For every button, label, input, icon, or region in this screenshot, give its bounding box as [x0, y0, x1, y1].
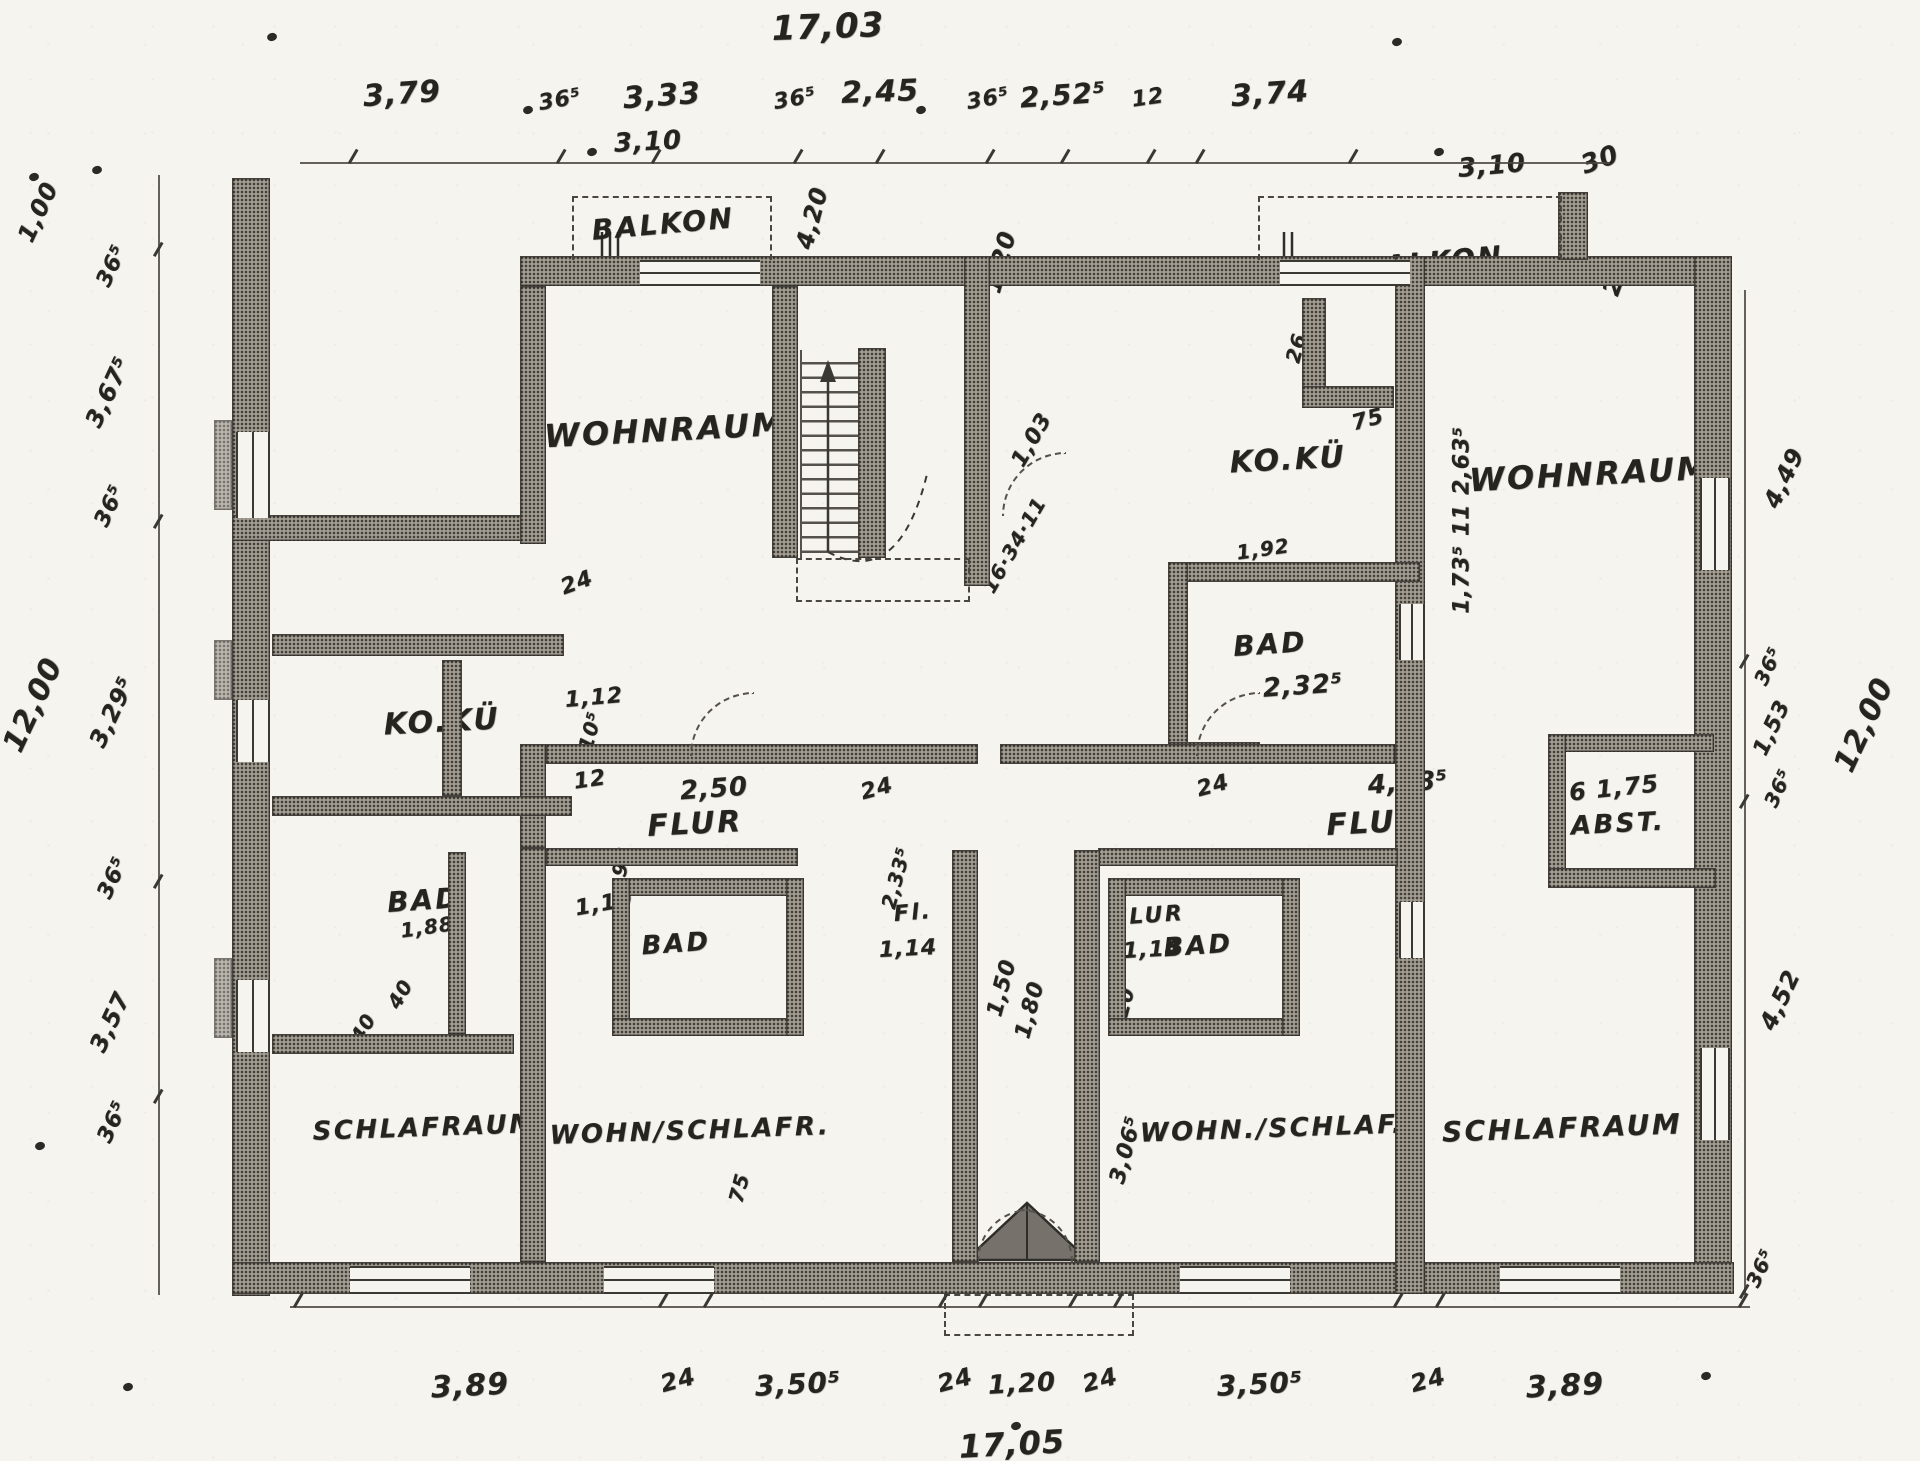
- entry-canopy-icon: [966, 1203, 1088, 1260]
- wall: [1548, 868, 1716, 888]
- photocopy-dot: [266, 32, 278, 42]
- wall: [772, 286, 798, 558]
- dim-entry-1-80: 1,80: [1010, 979, 1049, 1042]
- dim-bottom-24-b: 24: [934, 1362, 975, 1398]
- dim-top-2-52-5: 2,52⁵: [1019, 76, 1107, 115]
- wall: [964, 256, 990, 586]
- dim-entry-1-50: 1,50: [982, 957, 1021, 1020]
- dimension-line: [290, 1306, 1750, 1308]
- room-label-wohn-schlaf: WOHN./SCHLAF.: [1139, 1109, 1404, 1148]
- wall: [214, 958, 232, 1038]
- wall: [1548, 734, 1566, 886]
- dim-bottom-3-50-5-right: 3,50⁵: [1216, 1365, 1304, 1402]
- wall: [214, 640, 232, 700]
- wall: [1168, 562, 1420, 582]
- dim-right-36-5-b: 36⁵: [1759, 765, 1797, 811]
- dim-right-1-53: 1,53: [1748, 696, 1795, 759]
- wall: [1074, 850, 1100, 1262]
- stair-landing-outline: [796, 558, 970, 602]
- window: [640, 260, 760, 286]
- window: [1399, 604, 1425, 660]
- dim-koku-left-12: 12: [572, 765, 608, 794]
- balcony-outline: [572, 196, 772, 260]
- wall: [612, 878, 630, 1036]
- dim-flur-right-1-14: 1,14: [1122, 936, 1182, 964]
- room-label-wohnraum-left: WOHNRAUM: [543, 405, 787, 456]
- window: [1180, 1266, 1290, 1294]
- dim-bottom-24-d: 24: [1407, 1362, 1448, 1398]
- dim-left-36-5-a: 36⁵: [92, 241, 133, 291]
- photocopy-dot: [122, 1382, 134, 1392]
- dim-wohnraum-right-chain: 1,73⁵ 11 2,63⁵: [1450, 426, 1475, 614]
- dim-left-3-29-5: 3,29⁵: [84, 672, 141, 752]
- dim-flur-right-24: 24: [1194, 770, 1232, 803]
- dim-bottom-3-89-left: 3,89: [430, 1366, 510, 1405]
- photocopy-dot: [1433, 147, 1445, 157]
- dim-bad-right-2-32-5: 2,32⁵: [1262, 668, 1344, 704]
- dim-top-3-74: 3,74: [1230, 74, 1310, 114]
- wall: [442, 660, 462, 796]
- dim-overall-depth-right: 12,00: [1827, 672, 1901, 777]
- room-label-bad-lower-left: BAD: [641, 927, 712, 962]
- photocopy-dot: [1700, 1371, 1712, 1381]
- dimension-line: [300, 162, 1610, 164]
- dim-top-36-5-a: 36⁵: [537, 84, 584, 116]
- room-label-wohnraum-right: WOHNRAUM: [1468, 449, 1712, 500]
- wall: [1282, 878, 1300, 1036]
- wall: [1108, 1018, 1300, 1036]
- wall: [272, 796, 572, 816]
- dim-entry-75: 75: [724, 1170, 755, 1205]
- wall: [1108, 878, 1300, 896]
- wall: [612, 878, 804, 896]
- dim-fl-left-1-14: 1,14: [878, 935, 938, 963]
- dim-bottom-24-c: 24: [1079, 1362, 1120, 1398]
- room-label-abst: ABST.: [1570, 807, 1666, 842]
- photocopy-dot: [915, 105, 927, 115]
- floor-plan-canvas: 17,03 17,05 12,00 12,00 BALKONBALKONWOHN…: [0, 0, 1920, 1461]
- window: [236, 432, 270, 518]
- window: [1700, 478, 1730, 570]
- dim-bottom-24-a: 24: [657, 1362, 698, 1398]
- entry-stoop-outline: [944, 1294, 1134, 1336]
- dim-left-3-67-5: 3,67⁵: [80, 352, 137, 432]
- dim-top-36-5-b: 36⁵: [772, 83, 819, 115]
- dim-left-3-57: 3,57: [84, 987, 136, 1056]
- room-label-ko-ku-right: KO.KÜ: [1229, 439, 1347, 480]
- dim-flur-left-24: 24: [858, 773, 896, 806]
- wall: [1548, 734, 1714, 752]
- dim-left-36-5-d: 36⁵: [93, 1097, 134, 1147]
- dim-overall-depth-left: 12,00: [0, 652, 70, 757]
- dim-balkon-right-3-10: 3,10: [1457, 148, 1528, 184]
- wall: [546, 848, 798, 866]
- window: [1399, 902, 1425, 958]
- wall: [1108, 878, 1126, 1036]
- wall: [546, 744, 978, 764]
- wall: [1098, 848, 1398, 866]
- wall: [272, 1034, 514, 1054]
- dimension-line: [158, 175, 160, 1295]
- photocopy-dot: [91, 165, 103, 175]
- room-label-wohn-schlafr: WOHN/SCHLAFR.: [549, 1111, 831, 1151]
- dim-top-3-79: 3,79: [362, 74, 442, 114]
- wall: [448, 852, 466, 1034]
- dim-left-36-5-b: 36⁵: [90, 481, 131, 531]
- room-label-bad-right: BAD: [1232, 625, 1308, 663]
- dim-leftwing-24: 24: [557, 566, 596, 601]
- dim-wall-3-06-5: 3,06⁵: [1105, 1113, 1147, 1186]
- wall: [612, 1018, 804, 1036]
- wall: [520, 848, 546, 1262]
- dim-koku-left-1-12: 1,12: [564, 683, 624, 713]
- dim-top-2-45: 2,45: [840, 73, 919, 111]
- dim-top-3-33: 3,33: [622, 76, 702, 116]
- dim-balkon-right-30: 30: [1577, 139, 1623, 180]
- window: [1700, 1048, 1730, 1140]
- wall: [520, 286, 546, 544]
- dim-abst-6-1-75: 6 1,75: [1568, 769, 1661, 806]
- door-arc: [690, 692, 754, 756]
- dim-bad-left-40-a: 40: [382, 975, 418, 1013]
- wall: [1168, 562, 1188, 762]
- balcony-outline: [1258, 196, 1562, 260]
- entry-door-swing-2: [1020, 1210, 1072, 1262]
- dim-balkon-left-3-10: 3,10: [613, 125, 683, 159]
- entry-door-swing: [978, 1210, 1030, 1262]
- dim-bottom-3-50-5-left: 3,50⁵: [754, 1365, 842, 1402]
- dim-right-36-5-a: 36⁵: [1749, 643, 1787, 689]
- dim-bottom-3-89-right: 3,89: [1525, 1366, 1605, 1405]
- photocopy-dot: [586, 147, 598, 157]
- dim-left-36-5-c: 36⁵: [93, 853, 134, 903]
- dim-koku-right-75: 75: [1349, 404, 1387, 437]
- photocopy-dot: [1391, 37, 1403, 47]
- dim-flur-left-2-50: 2,50: [679, 772, 749, 807]
- window: [1280, 260, 1410, 286]
- dim-koku-right-1-92: 1,92: [1235, 533, 1291, 564]
- wall: [1395, 256, 1425, 1294]
- wall: [952, 850, 978, 1262]
- photocopy-dot: [34, 1141, 46, 1151]
- dim-top-12: 12: [1130, 83, 1166, 112]
- window: [604, 1266, 714, 1294]
- dim-right-4-49: 4,49: [1758, 443, 1810, 512]
- room-label-schlafraum-right: SCHLAFRAUM: [1441, 1107, 1682, 1148]
- window: [236, 700, 270, 762]
- photocopy-dot: [522, 105, 534, 115]
- dim-right-4-52: 4,52: [1754, 965, 1806, 1034]
- wall: [858, 348, 886, 558]
- dim-4-20: 4,20: [790, 184, 833, 252]
- door-arc: [1196, 692, 1260, 756]
- window: [236, 980, 270, 1052]
- wall: [1302, 386, 1394, 408]
- dim-top-36-5-c: 36⁵: [965, 83, 1012, 115]
- dimension-line: [1744, 290, 1746, 1295]
- room-label-flur-left: FLUR: [646, 804, 743, 844]
- wall: [214, 420, 232, 510]
- room-label-schlafraum-left: SCHLAFRAUM: [312, 1109, 538, 1147]
- wall: [232, 515, 528, 541]
- dim-overall-width-top: 17,03: [771, 5, 885, 49]
- window: [1500, 1266, 1620, 1294]
- wall: [1558, 192, 1588, 260]
- wall: [272, 634, 564, 656]
- dim-left-1-00: 1,00: [12, 177, 64, 246]
- window: [350, 1266, 470, 1294]
- staircase: [800, 350, 862, 558]
- wall: [786, 878, 804, 1036]
- dim-bottom-1-20: 1,20: [987, 1367, 1057, 1401]
